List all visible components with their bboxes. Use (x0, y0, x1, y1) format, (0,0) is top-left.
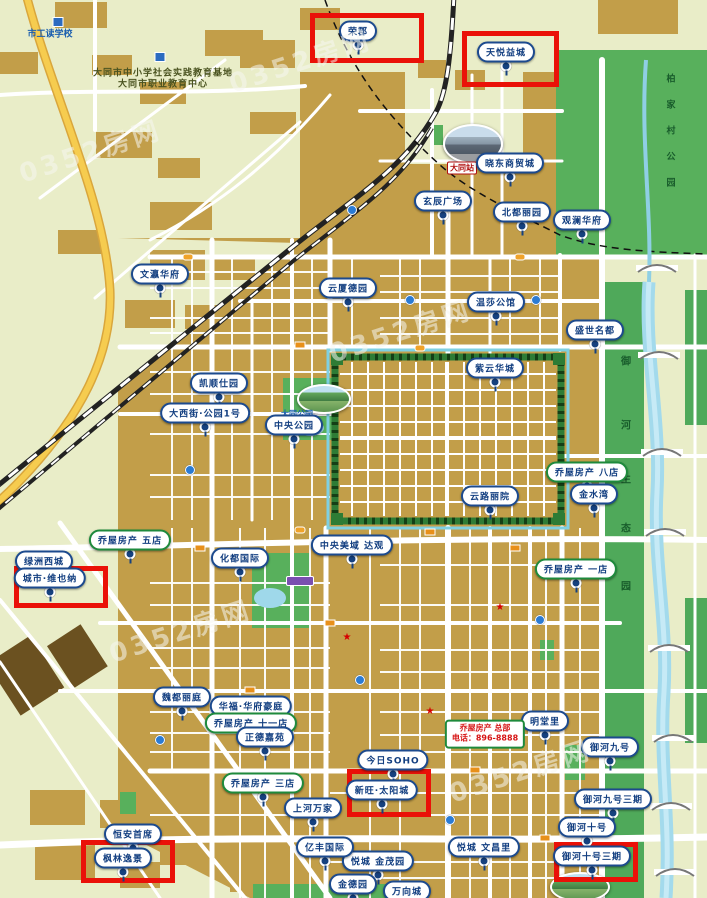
map-label-rongjun[interactable]: 荣郡 (339, 21, 377, 42)
map-label-zhongyang-meiyu-daguan[interactable]: 中央美域 达观 (311, 535, 393, 556)
star-icon: ★ (426, 707, 435, 717)
map-label-tianyue-yicheng[interactable]: 天悦益城 (477, 42, 535, 63)
map-label-yuhe-shihao-sanqi[interactable]: 御河十号三期 (553, 846, 631, 867)
yuhe-eco-park-name: 河 (621, 417, 631, 432)
map-label-guanlan-huafu[interactable]: 观澜华府 (553, 210, 611, 231)
map-label-yuecheng-wenchangli[interactable]: 悦城 文昌里 (448, 837, 520, 858)
info-icon (155, 735, 165, 745)
info-icon (405, 295, 415, 305)
bus-stop-icon (245, 687, 256, 694)
map-label-zhengde-jiayuan[interactable]: 正德嘉苑 (236, 727, 294, 748)
map-label-jinshuiwan[interactable]: 金水湾 (570, 484, 618, 505)
star-icon: ★ (343, 633, 352, 643)
map-label-zhongyang-gongyuan[interactable]: 中央公园 (265, 415, 323, 436)
qiaowu-fangchan-zongbu[interactable]: 乔屋房产 总部电话：896-8888 (445, 720, 525, 749)
road-badge (415, 345, 426, 352)
map-label-xuanchen-guangchang[interactable]: 玄辰广场 (414, 191, 472, 212)
info-icon (445, 815, 455, 825)
map-label-yuecheng-jinmaoyuan[interactable]: 悦城 金茂园 (342, 851, 414, 872)
map-label-hengan-shouxi[interactable]: 恒安首席 (104, 824, 162, 845)
map-label-daxijie-gongyuan-1hao[interactable]: 大西街·公园1号 (160, 403, 250, 424)
map-label-wensha-gongguan[interactable]: 温莎公馆 (467, 292, 525, 313)
map-label-weidu-liting[interactable]: 魏都丽庭 (153, 687, 211, 708)
bus-stop-icon (325, 620, 336, 627)
baijiacun-park-name: 村 (666, 124, 675, 137)
map-label-yunsha-deyuan[interactable]: 云厦德园 (319, 278, 377, 299)
map-label-shengshi-mingdu[interactable]: 盛世名都 (566, 320, 624, 341)
map-label-jindeyuan[interactable]: 金德园 (329, 874, 377, 895)
map-label-yuhe-jiuhao-sanqi[interactable]: 御河九号三期 (574, 789, 652, 810)
baijiacun-park-name: 公 (666, 150, 675, 163)
road-badge (183, 254, 194, 261)
baijiacun-park-name: 家 (666, 98, 675, 111)
map-label-qiaowu-fangchan-badian[interactable]: 乔屋房产 八店 (546, 462, 628, 483)
baijiacun-park-name: 柏 (666, 72, 675, 85)
map-label-beidu-liyuan[interactable]: 北都丽园 (493, 202, 551, 223)
yuhe-eco-park-name: 态 (621, 520, 631, 535)
map-label-mingtangli[interactable]: 明堂里 (521, 711, 569, 732)
shigongdu-school: 市工读学校 (27, 27, 72, 40)
old-city (328, 350, 568, 528)
map-label-xiaodong-shangmaocheng[interactable]: 晓东商贸城 (476, 153, 544, 174)
map-label-fenglin-yijing[interactable]: 枫林逸景 (94, 848, 152, 869)
city-map: ★★★荣郡天悦益城晓东商贸城玄辰广场北都丽园观澜华府文瀛华府云厦德园温莎公馆盛世… (0, 0, 707, 898)
education-base-line2: 大同市职业教育中心 (118, 77, 208, 90)
bus-stop-icon (470, 767, 481, 774)
map-label-kaishun-shiyuan[interactable]: 凯顺仕园 (190, 373, 248, 394)
map-label-qiaowu-fangchan-wudian[interactable]: 乔屋房产 五店 (89, 530, 171, 551)
info-icon (355, 675, 365, 685)
map-label-qiaowu-fangchan-yidian[interactable]: 乔屋房产 一店 (535, 559, 617, 580)
road-badge (515, 254, 526, 261)
bus-stop-icon (295, 342, 306, 349)
bus-stop-icon (510, 545, 521, 552)
map-label-wanxiangcheng[interactable]: 万向城 (383, 881, 431, 898)
park-badge (286, 576, 314, 586)
map-label-yunlu-liyuan[interactable]: 云路丽院 (461, 486, 519, 507)
map-label-chengshi-weiyena[interactable]: 城市·维也纳 (14, 568, 86, 589)
bus-stop-icon (195, 545, 206, 552)
info-icon (531, 295, 541, 305)
yuhe-eco-park-name: 御 (621, 353, 631, 368)
map-label-yuhe-shihao[interactable]: 御河十号 (558, 817, 616, 838)
map-label-xinwang-taiyangcheng[interactable]: 新旺·太阳城 (346, 780, 418, 801)
map-label-ziyun-huacheng[interactable]: 紫云华城 (466, 358, 524, 379)
yuhe-eco-park-name: 园 (621, 578, 631, 593)
bus-stop-icon (425, 529, 436, 536)
info-icon (347, 205, 357, 215)
map-label-huadu-guoji[interactable]: 化都国际 (211, 548, 269, 569)
map-label-yifeng-guoji[interactable]: 亿丰国际 (296, 837, 354, 858)
map-label-yuhe-jiuhao[interactable]: 御河九号 (581, 737, 639, 758)
map-canvas (0, 0, 707, 898)
map-label-shanghe-wanjia[interactable]: 上河万家 (284, 798, 342, 819)
map-label-wenying-huafu[interactable]: 文瀛华府 (131, 264, 189, 285)
info-icon (185, 465, 195, 475)
map-label-jinri-soho[interactable]: 今日SOHO (357, 750, 428, 771)
school-icon (53, 17, 64, 27)
datong-station-name: 大同站 (447, 162, 477, 175)
map-label-qiaowu-fangchan-sandian[interactable]: 乔屋房产 三店 (222, 773, 304, 794)
school-icon (155, 52, 166, 62)
road-badge (295, 527, 306, 534)
bus-stop-icon (540, 835, 551, 842)
baijiacun-park-name: 园 (666, 176, 675, 189)
info-icon (535, 615, 545, 625)
star-icon: ★ (496, 603, 505, 613)
